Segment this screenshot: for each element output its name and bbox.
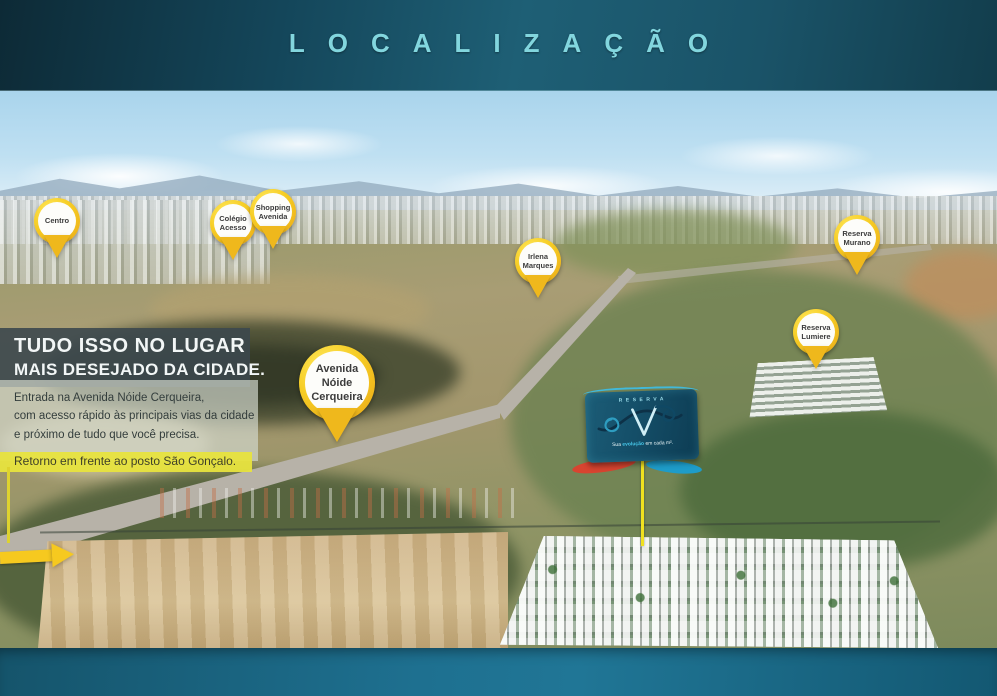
reserva-evo-billboard: RESERVA Sua evolução em cada m². (585, 389, 699, 463)
info-highlight-strip: Retorno em frente ao posto São Gonçalo. (0, 452, 252, 472)
info-heading-box: TUDO ISSO NO LUGAR MAIS DESEJADO DA CIDA… (0, 328, 250, 387)
pin-label: Reserva (842, 229, 871, 238)
pin-label: Colégio (219, 214, 247, 223)
pin-tail (525, 275, 551, 298)
pin-label: Lumiere (801, 332, 830, 341)
arrow-shaft (0, 549, 52, 564)
route-arrow-icon (0, 542, 79, 570)
pin-label: Nóide (322, 376, 353, 390)
billboard-pointer-line (641, 458, 644, 546)
map-pin-shopping-avenida: Shopping Avenida (250, 189, 296, 249)
map-pin-centro: Centro (34, 198, 80, 258)
info-body-box: Entrada na Avenida Nóide Cerqueira, com … (0, 380, 258, 461)
header-bar: LOCALIZAÇÃO (0, 0, 997, 91)
localization-flyer: LOCALIZAÇÃO TUDO ISSO NO LUGAR MAIS DESE… (0, 0, 997, 696)
pin-label: Reserva (801, 323, 830, 332)
info-heading-line1: TUDO ISSO NO LUGAR (14, 335, 250, 358)
map-pin-reserva-murano: Reserva Murano (834, 215, 880, 275)
route-guide-line (7, 467, 10, 543)
village-houses (160, 488, 520, 518)
map-pin-avenida-noide-cerqueira: Avenida Nóide Cerqueira (299, 345, 375, 442)
tagline-pre: Sua (612, 442, 623, 448)
pin-tail (803, 346, 829, 369)
pin-tail (44, 235, 70, 258)
pin-tail (260, 226, 286, 249)
footer-bar (0, 648, 997, 696)
pin-label: Avenida (316, 362, 358, 376)
pin-label: Cerqueira (311, 390, 362, 404)
tagline-post: em cada m². (644, 440, 673, 447)
info-body-line1: Entrada na Avenida Nóide Cerqueira, (14, 389, 258, 407)
evo-logo-icon (593, 402, 690, 441)
cleared-land (38, 532, 508, 648)
pin-tail (220, 237, 246, 260)
tagline-highlight: evolução (622, 441, 644, 448)
pin-label: Murano (843, 238, 870, 247)
map-pin-reserva-lumiere: Reserva Lumiere (793, 309, 839, 369)
pin-tail (844, 252, 870, 275)
pin-label: Centro (45, 216, 69, 225)
page-title: LOCALIZAÇÃO (0, 28, 997, 59)
pin-label: Avenida (259, 212, 288, 221)
pin-tail (317, 408, 357, 442)
info-body-line2: com acesso rápido às principais vias da … (14, 407, 258, 425)
condominium-development (500, 536, 938, 648)
info-heading-line2: MAIS DESEJADO DA CIDADE. (14, 360, 250, 380)
map-pin-irlena-marques: Irlena Marques (515, 238, 561, 298)
info-body-line3: e próximo de tudo que você precisa. (14, 426, 258, 444)
pin-label: Marques (523, 261, 554, 270)
pin-label: Acesso (220, 223, 247, 232)
arrow-head (51, 542, 74, 567)
pin-label: Irlena (528, 252, 548, 261)
pin-label: Shopping (256, 203, 291, 212)
